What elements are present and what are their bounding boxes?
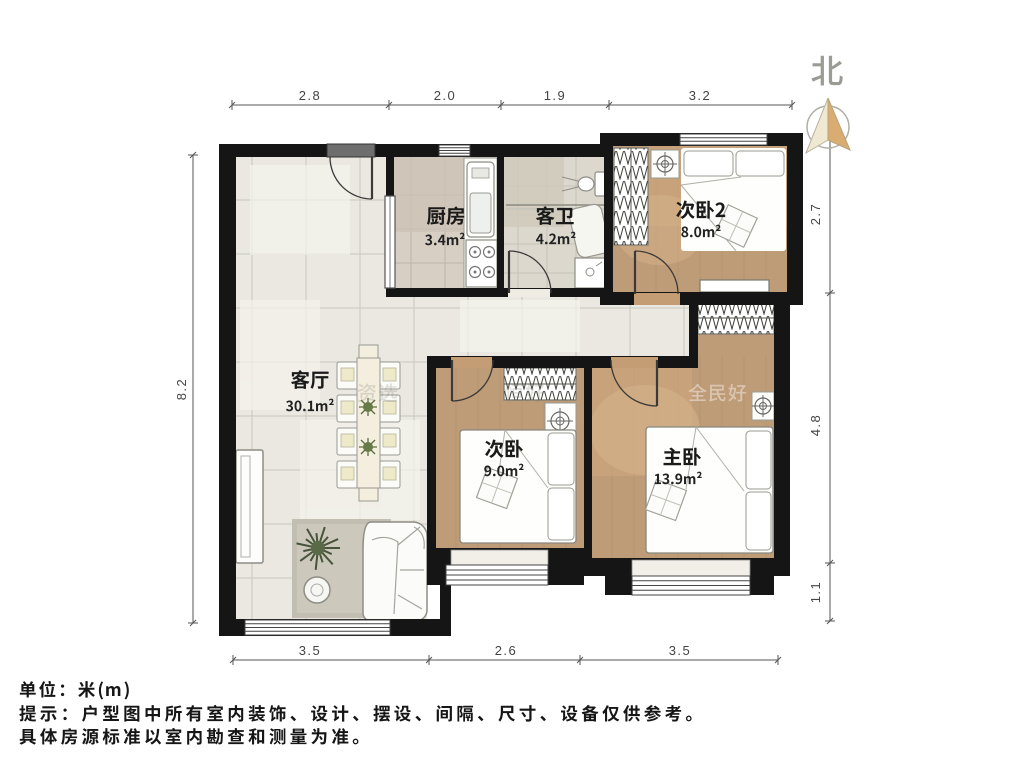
svg-text:3.5: 3.5 bbox=[669, 643, 692, 658]
svg-text:1.9: 1.9 bbox=[544, 88, 567, 103]
svg-text:2.8: 2.8 bbox=[299, 88, 322, 103]
svg-text:2.6: 2.6 bbox=[495, 643, 518, 658]
svg-text:3.2: 3.2 bbox=[689, 88, 712, 103]
svg-text:8.2: 8.2 bbox=[174, 378, 189, 401]
svg-text:2.7: 2.7 bbox=[808, 203, 823, 226]
svg-text:3.5: 3.5 bbox=[299, 643, 322, 658]
svg-text:2.0: 2.0 bbox=[434, 88, 457, 103]
svg-text:1.1: 1.1 bbox=[808, 581, 823, 604]
svg-text:4.8: 4.8 bbox=[808, 414, 823, 437]
